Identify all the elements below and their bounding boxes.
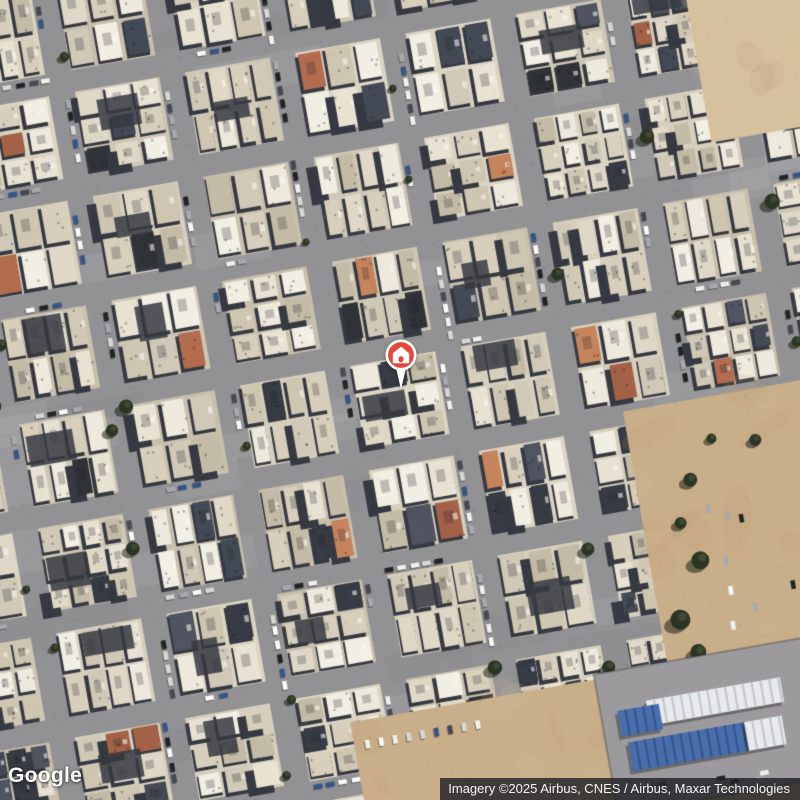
home-marker[interactable] bbox=[381, 339, 421, 393]
map-viewport[interactable]: Google Imagery ©2025 Airbus, CNES / Airb… bbox=[0, 0, 800, 800]
google-logo[interactable]: Google bbox=[8, 764, 82, 788]
home-icon-door bbox=[399, 356, 404, 362]
satellite-imagery[interactable] bbox=[0, 0, 800, 800]
home-marker-pin bbox=[381, 339, 421, 393]
attribution-bar: Imagery ©2025 Airbus, CNES / Airbus, Max… bbox=[440, 778, 800, 800]
attribution-text: Imagery ©2025 Airbus, CNES / Airbus, Max… bbox=[448, 778, 790, 800]
